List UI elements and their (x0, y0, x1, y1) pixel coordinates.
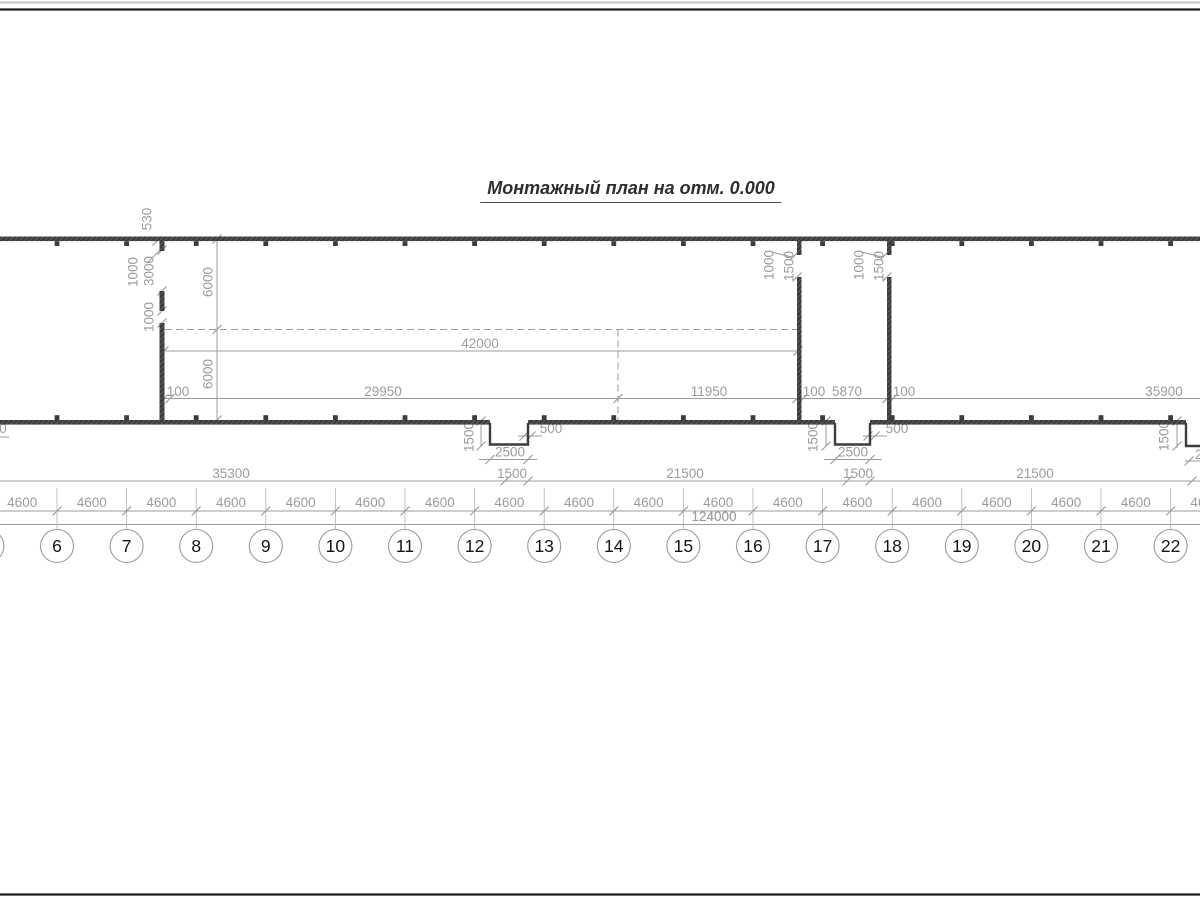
axis-spacing-label: 4600 (77, 495, 107, 510)
axis-spacing-label: 4600 (425, 495, 455, 510)
wall-segment (160, 323, 165, 425)
column-marker (194, 415, 199, 420)
axis-spacing-label: 4600 (564, 495, 594, 510)
column-marker (472, 415, 477, 420)
wall-segment (160, 241, 165, 251)
overall-dim-label: 124000 (691, 509, 736, 524)
dim-label: 3000 (142, 256, 157, 286)
dim-label: 2500 (1195, 447, 1200, 462)
column-marker (124, 241, 129, 246)
dim-label: 100 (803, 384, 826, 399)
column-marker (403, 241, 408, 246)
column-marker (890, 415, 895, 420)
axis-spacing-label: 4600 (494, 495, 524, 510)
wall-notch-outline (835, 423, 870, 445)
axis-number: 10 (326, 536, 346, 556)
axis-spacing-label: 4600 (842, 495, 872, 510)
column-marker (1099, 241, 1104, 246)
column-marker (1168, 415, 1173, 420)
axis-spacing-label: 4600 (216, 495, 246, 510)
column-marker (542, 241, 547, 246)
axis-spacing-label: 4600 (1121, 495, 1151, 510)
dim-label: 2500 (838, 445, 868, 460)
axis-spacing-label: 4600 (912, 495, 942, 510)
dim-label: 1500 (462, 422, 477, 452)
axis-number: 18 (882, 536, 901, 556)
column-marker (333, 415, 338, 420)
wall-notch-outline (1186, 423, 1200, 446)
wall-segment (870, 420, 1186, 425)
wall-notch-outline (490, 423, 528, 445)
axis-number: 14 (604, 536, 624, 556)
column-marker (1168, 241, 1173, 246)
axis-number: 15 (674, 536, 693, 556)
dim-label: 6000 (201, 267, 216, 297)
column-marker (959, 415, 964, 420)
dim-label: 35900 (1145, 384, 1183, 399)
axis-number: 6 (52, 536, 62, 556)
dim-label: 1500 (497, 466, 527, 481)
dim-label: 35300 (212, 466, 250, 481)
column-marker (681, 415, 686, 420)
axis-number: 22 (1161, 536, 1180, 556)
dim-label: 530 (140, 208, 155, 231)
axis-spacing-label: 4600 (146, 495, 176, 510)
axis-spacing-label: 4600 (7, 495, 37, 510)
column-marker (751, 415, 756, 420)
column-marker (472, 241, 477, 246)
column-marker (959, 241, 964, 246)
column-marker (890, 241, 895, 246)
dim-label: 6000 (201, 359, 216, 389)
dim-label: 1000 (126, 257, 141, 287)
axis-bubble (0, 530, 4, 563)
wall-segment (160, 291, 165, 311)
column-marker (751, 241, 756, 246)
column-marker (1029, 241, 1034, 246)
blueprint-page: 4200010029950119501005870100359003530015… (0, 0, 1200, 900)
wall-segment (887, 277, 892, 425)
wall-segment (797, 277, 802, 425)
dim-label: 1500 (782, 251, 797, 281)
dim-label: 2500 (495, 445, 525, 460)
column-marker (820, 241, 825, 246)
axis-spacing-label: 4600 (982, 495, 1012, 510)
dim-label: 1000 (142, 302, 157, 332)
dim-label: 100 (167, 384, 190, 399)
dim-label: 1500 (1157, 421, 1172, 451)
axis-number: 20 (1022, 536, 1042, 556)
plan-canvas: 4200010029950119501005870100359003530015… (0, 0, 1200, 900)
dim-label: 21500 (666, 466, 704, 481)
column-marker (403, 415, 408, 420)
column-marker (611, 241, 616, 246)
dim-label: 29950 (364, 384, 402, 399)
wall-segment (528, 420, 835, 425)
column-marker (542, 415, 547, 420)
axis-number: 9 (261, 536, 271, 556)
drawing-title: Монтажный план на отм. 0.000 (480, 178, 781, 203)
axis-spacing-label: 4600 (634, 495, 664, 510)
column-marker (55, 415, 60, 420)
dim-label: 1500 (806, 422, 821, 452)
column-marker (333, 241, 338, 246)
axis-number: 16 (743, 536, 762, 556)
axis-spacing-label: 4600 (703, 495, 733, 510)
dim-label: 1500 (872, 251, 887, 281)
column-marker (1029, 415, 1034, 420)
column-marker (124, 415, 129, 420)
column-marker (263, 241, 268, 246)
axis-number: 8 (191, 536, 201, 556)
axis-spacing-label: 4600 (773, 495, 803, 510)
dim-label: 5870 (832, 384, 862, 399)
axis-number: 21 (1091, 536, 1110, 556)
column-marker (194, 241, 199, 246)
dim-label: 1000 (852, 250, 867, 280)
axis-number: 7 (122, 536, 132, 556)
dim-label: 1000 (762, 250, 777, 280)
axis-spacing-label: 4600 (286, 495, 316, 510)
axis-spacing-label: 4600 (355, 495, 385, 510)
dim-label: 11950 (691, 384, 728, 399)
axis-number: 19 (952, 536, 971, 556)
column-marker (820, 415, 825, 420)
column-marker (681, 241, 686, 246)
dim-label: 42000 (461, 336, 499, 351)
column-marker (55, 241, 60, 246)
column-marker (611, 415, 616, 420)
wall-segment (0, 420, 490, 425)
wall-segment (797, 241, 802, 255)
axis-number: 13 (534, 536, 553, 556)
dim-label: 1500 (843, 466, 873, 481)
dim-label: 100 (893, 384, 916, 399)
axis-number: 11 (396, 536, 414, 556)
column-marker (1099, 415, 1104, 420)
wall-segment (0, 237, 1200, 242)
axis-spacing-label: 4600 (1051, 495, 1081, 510)
dim-label: 21500 (1016, 466, 1054, 481)
axis-number: 17 (813, 536, 832, 556)
axis-spacing-label: 4600 (1190, 495, 1200, 510)
axis-number: 12 (465, 536, 484, 556)
column-marker (263, 415, 268, 420)
